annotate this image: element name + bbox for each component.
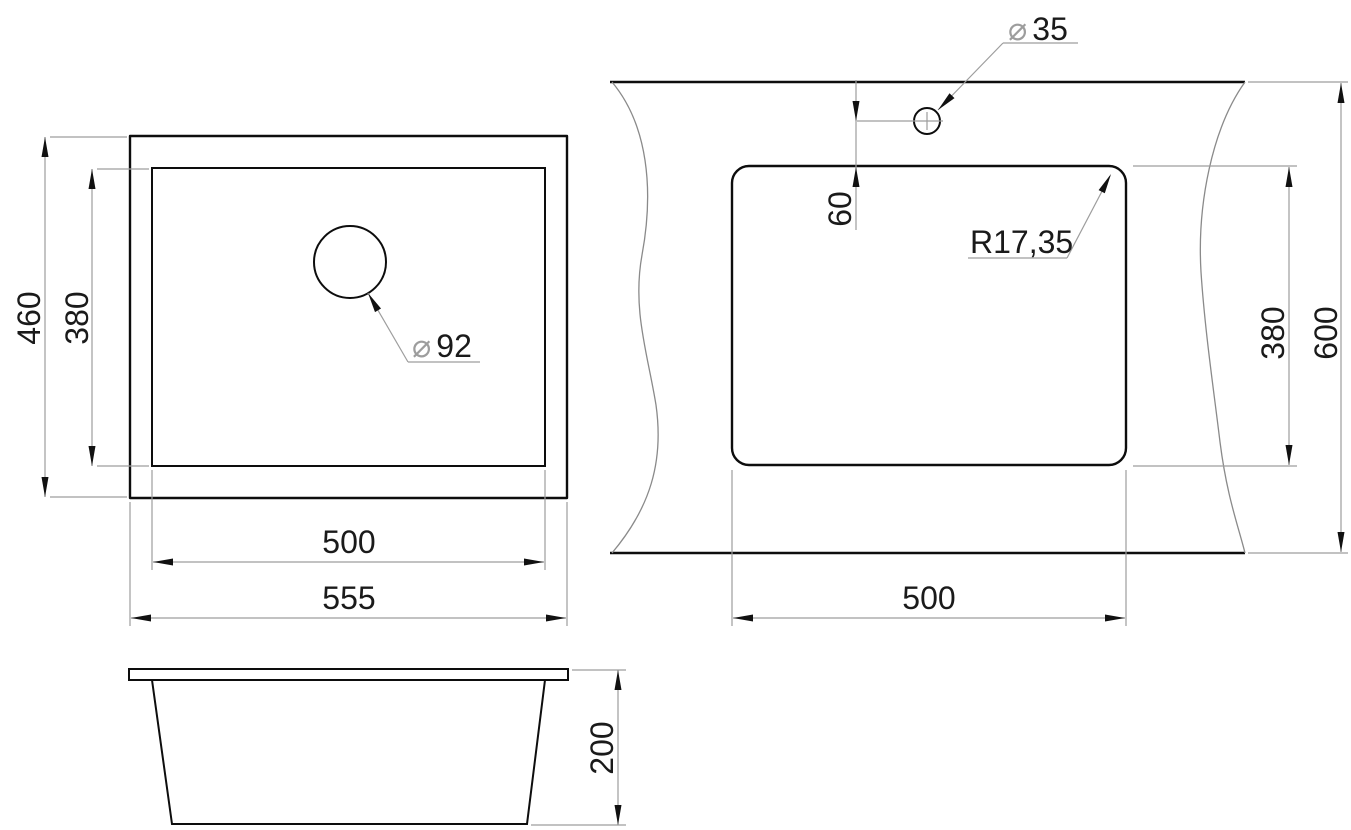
arrow-down-icon: [615, 805, 622, 825]
dim-label-sink-height: 200: [584, 721, 620, 774]
arrow-right-icon: [546, 615, 566, 622]
arrow-right-icon: [1105, 615, 1125, 622]
top-view: 460 380 500 555 ⌀92: [11, 136, 567, 626]
leader-arrow-icon: [938, 93, 955, 110]
sink-rim-profile: [129, 669, 568, 680]
dim-label-outer-width: 555: [322, 580, 375, 616]
diameter-icon: ⌀: [412, 327, 431, 365]
arrow-left-icon: [131, 615, 151, 622]
dim-label-corner-radius: R17,35: [970, 224, 1073, 260]
dim-label-cutout-depth: 380: [1255, 306, 1291, 359]
arrow-up-icon: [1338, 83, 1345, 103]
leader-arrow-icon: [1099, 174, 1111, 193]
cutout-outline: [732, 166, 1126, 465]
dim-label-bowl-width: 500: [322, 524, 375, 560]
sink-outer-outline: [130, 136, 567, 498]
break-line-left: [612, 82, 658, 553]
sink-bowl-outline: [152, 168, 545, 466]
dim-label-faucet-diameter: ⌀35: [1008, 10, 1068, 48]
arrow-left-icon: [153, 559, 173, 566]
dim-label-counter-depth: 600: [1308, 306, 1344, 359]
sink-technical-drawing: 460 380 500 555 ⌀92: [0, 0, 1351, 830]
dim-label-cutout-width: 500: [902, 580, 955, 616]
arrow-down-icon: [1338, 532, 1345, 552]
dim-label-faucet-offset: 60: [822, 191, 858, 227]
arrow-left-icon: [733, 615, 753, 622]
leader-arrow-icon: [368, 293, 381, 312]
drawing-canvas: 460 380 500 555 ⌀92: [0, 0, 1351, 830]
arrow-down-icon: [89, 446, 96, 466]
arrow-up-icon: [89, 169, 96, 189]
side-view: 200: [129, 669, 626, 825]
arrow-up-icon: [1286, 167, 1293, 187]
dim-label-bowl-depth: 380: [59, 291, 95, 344]
arrow-up-icon: [42, 137, 49, 157]
arrow-down-icon: [1286, 445, 1293, 465]
cutout-view: ⌀35 60 R17,35 380 600 500: [610, 10, 1348, 626]
diameter-icon: ⌀: [1008, 10, 1027, 48]
arrow-up-icon: [853, 167, 860, 187]
arrow-down-icon: [42, 477, 49, 497]
drain-hole: [314, 226, 386, 298]
sink-body-profile: [152, 680, 545, 824]
break-line-right: [1200, 82, 1245, 553]
arrow-right-icon: [524, 559, 544, 566]
arrow-down-icon: [853, 101, 860, 121]
arrow-up-icon: [615, 670, 622, 690]
dim-label-outer-depth: 460: [11, 291, 47, 344]
dim-label-drain-diameter: ⌀92: [412, 327, 472, 365]
